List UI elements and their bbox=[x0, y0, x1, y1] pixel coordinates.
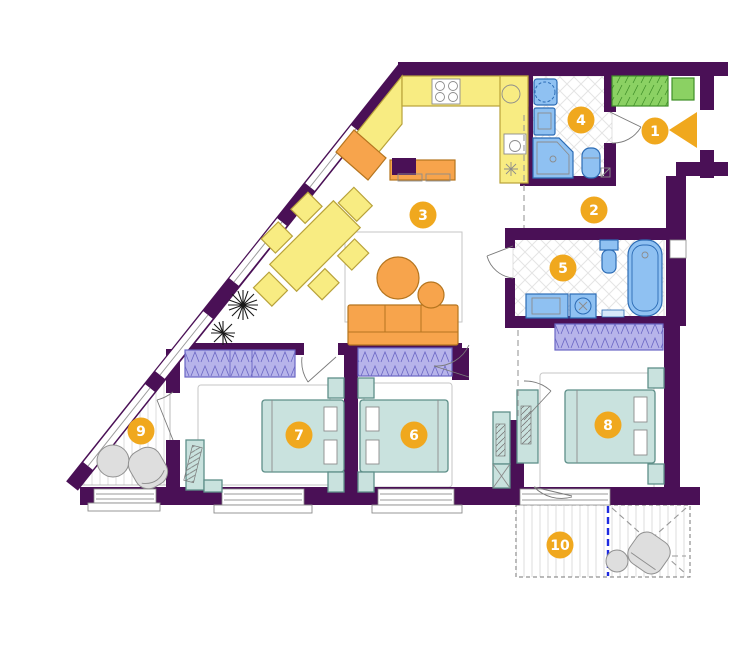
room-badge-6[interactable]: 6 bbox=[401, 422, 428, 449]
bar-counter bbox=[336, 130, 455, 181]
room-badge-1[interactable]: 1 bbox=[642, 118, 669, 145]
nightstand bbox=[358, 378, 374, 398]
sofa bbox=[348, 305, 458, 345]
svg-text:8: 8 bbox=[603, 418, 613, 434]
tv-unit bbox=[392, 158, 416, 175]
svg-text:5: 5 bbox=[558, 261, 568, 277]
pouf bbox=[606, 550, 628, 572]
svg-text:6: 6 bbox=[409, 428, 419, 444]
lamp-icon bbox=[504, 162, 518, 176]
pouf-small bbox=[418, 282, 444, 308]
svg-text:3: 3 bbox=[418, 208, 428, 224]
sink-icon bbox=[534, 108, 555, 135]
bath-mat bbox=[602, 310, 624, 317]
svg-text:2: 2 bbox=[589, 203, 599, 219]
chair bbox=[496, 424, 505, 456]
nightstand bbox=[648, 368, 664, 388]
toilet-tank bbox=[600, 240, 618, 250]
toilet-icon bbox=[582, 148, 600, 178]
room-badge-4[interactable]: 4 bbox=[568, 107, 595, 134]
svg-text:1: 1 bbox=[650, 124, 660, 140]
pouf-large bbox=[377, 257, 419, 299]
nightstand bbox=[648, 464, 664, 484]
room-badge-2[interactable]: 2 bbox=[581, 197, 608, 224]
round-table bbox=[97, 445, 129, 477]
floor-plan-svg: 12345678910 bbox=[0, 0, 751, 651]
toilet-icon bbox=[602, 250, 616, 273]
svg-text:7: 7 bbox=[294, 428, 304, 444]
oven-icon bbox=[504, 134, 526, 154]
desk-8 bbox=[517, 390, 538, 463]
desk-6 bbox=[493, 412, 510, 488]
chair bbox=[521, 406, 531, 444]
room-badge-8[interactable]: 8 bbox=[595, 412, 622, 439]
room-badge-7[interactable]: 7 bbox=[286, 422, 313, 449]
entrance-arrow-icon bbox=[669, 112, 697, 148]
nightstand bbox=[358, 472, 374, 492]
desk-7 bbox=[184, 440, 222, 492]
nightstand bbox=[328, 472, 344, 492]
room-badge-3[interactable]: 3 bbox=[410, 202, 437, 229]
room-badge-5[interactable]: 5 bbox=[550, 255, 577, 282]
room-badge-10[interactable]: 10 bbox=[547, 532, 574, 559]
washing-machine-icon bbox=[534, 79, 557, 105]
svg-text:9: 9 bbox=[136, 424, 146, 440]
nightstand bbox=[328, 378, 344, 398]
floor-plan-stage: 12345678910 bbox=[0, 0, 751, 651]
svg-text:4: 4 bbox=[576, 113, 586, 129]
entry-wardrobe bbox=[612, 76, 694, 106]
room-badge-9[interactable]: 9 bbox=[128, 418, 155, 445]
svg-text:10: 10 bbox=[550, 538, 570, 554]
